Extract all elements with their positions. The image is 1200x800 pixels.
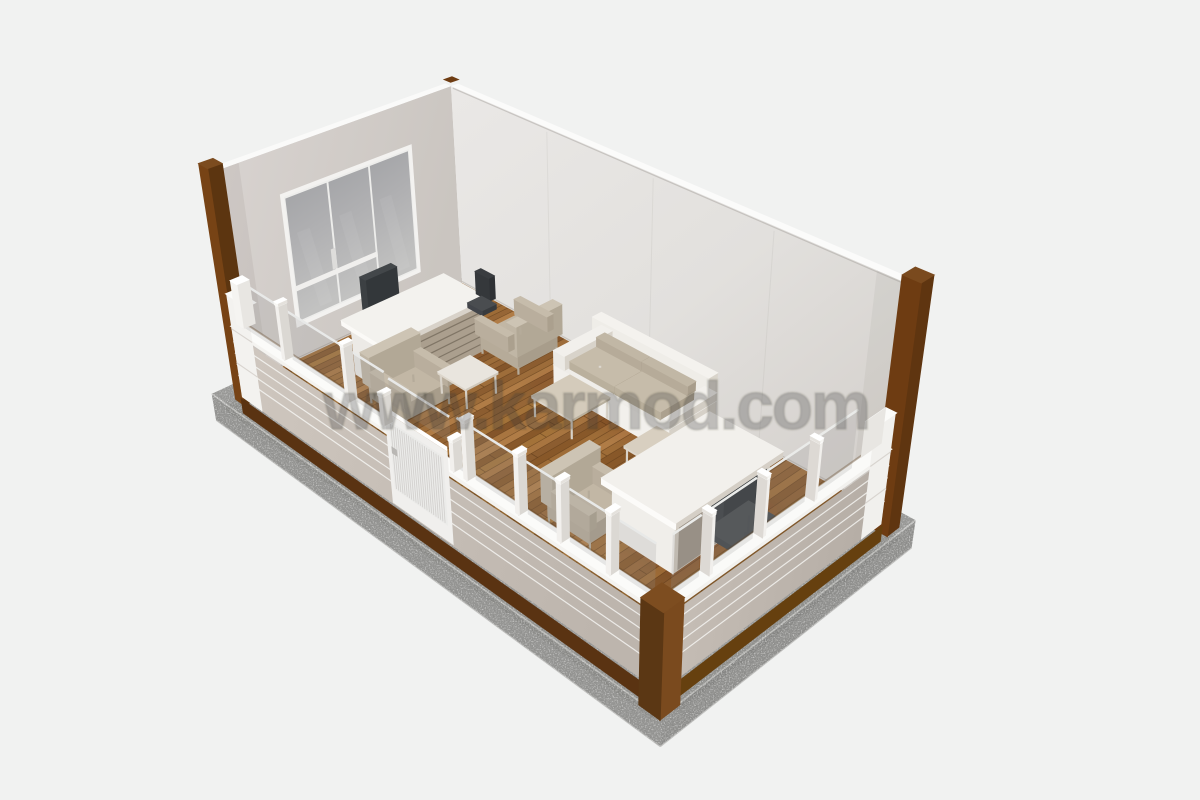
svg-text:www.karmod.com: www.karmod.com — [322, 368, 869, 444]
